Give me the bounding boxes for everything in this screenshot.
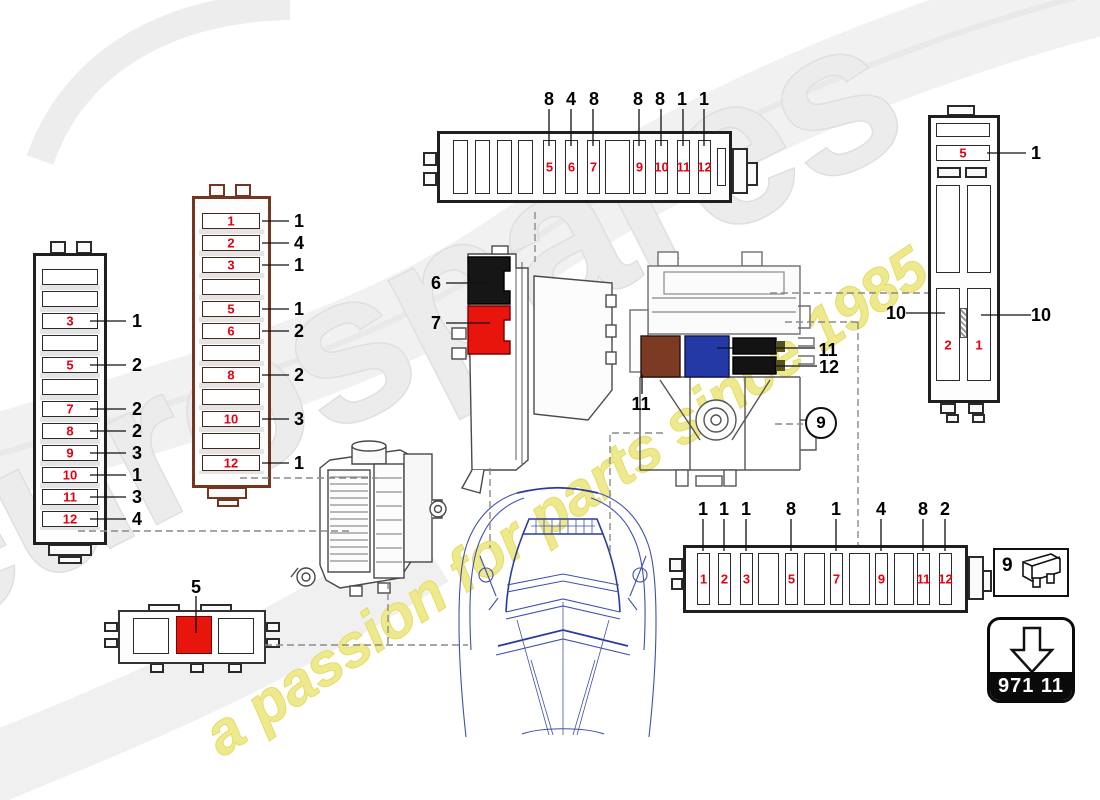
fuse-number: 2 [944, 339, 951, 352]
callout-top-slot6[interactable]: 4 [566, 90, 576, 108]
left-panel-foot-tab [58, 556, 82, 564]
right-panel-foot-pin-b [972, 414, 985, 423]
top-fusebox-connector-right-tab [746, 162, 758, 186]
left-row-8: 8 [42, 423, 98, 439]
callout-bottom-slot9[interactable]: 4 [876, 500, 886, 518]
top-slot-6: 6 [565, 140, 578, 194]
carrier-tab-right-a [266, 622, 280, 632]
fuse-number: 3 [66, 315, 73, 328]
callout-top-slot9[interactable]: 8 [633, 90, 643, 108]
bottom-slot-10 [894, 553, 914, 605]
mid-row-3: 3 [202, 257, 260, 273]
right-panel-center-key [960, 308, 967, 338]
callout-top-slot5[interactable]: 8 [544, 90, 554, 108]
bottom-fusebox-connector-left-a [669, 558, 683, 572]
legend-fuse-box: 9 [993, 548, 1069, 597]
bottom-slot-11: 11 [917, 553, 930, 605]
bottom-slot-3: 3 [740, 553, 753, 605]
callout-bottom-slot2[interactable]: 1 [719, 500, 729, 518]
fuse-number: 6 [568, 161, 575, 174]
mid-row-7 [202, 345, 260, 361]
top-slot-7: 7 [587, 140, 600, 194]
callout-bottom-slot7[interactable]: 1 [831, 500, 841, 518]
mid-row-11 [202, 433, 260, 449]
mid-row-10: 10 [202, 411, 260, 427]
left-panel-foot [48, 544, 92, 556]
bottom-slot-5: 5 [785, 553, 798, 605]
callout-bottom-slot1[interactable]: 1 [698, 500, 708, 518]
carrier-slot-left [133, 618, 169, 654]
fuse-number: 7 [66, 403, 73, 416]
fuse-number: 8 [227, 369, 234, 382]
circled-ref-label: 9 [816, 413, 825, 433]
callout-bottom-slot12[interactable]: 2 [940, 500, 950, 518]
callout-bottom-slot3[interactable]: 1 [741, 500, 751, 518]
fuse-number: 10 [224, 413, 238, 426]
fuse-number: 3 [227, 259, 234, 272]
left-row-4 [42, 335, 98, 351]
callout-bottom-slot11[interactable]: 8 [918, 500, 928, 518]
fuse-number: 12 [938, 573, 952, 586]
right-cell-bottom-right: 1 [967, 288, 991, 381]
callout-left-row12[interactable]: 4 [132, 510, 142, 528]
mid-row-8: 8 [202, 367, 260, 383]
fuse-number: 8 [66, 425, 73, 438]
mid-row-12: 12 [202, 455, 260, 471]
mid-row-6: 6 [202, 323, 260, 339]
callout-top-slot11[interactable]: 1 [677, 90, 687, 108]
fuse-number: 7 [590, 161, 597, 174]
callout-carrier-5[interactable]: 5 [191, 578, 201, 596]
bottom-fusebox-connector-left-b [671, 578, 683, 590]
callout-mid-row5[interactable]: 1 [294, 300, 304, 318]
top-slot-2 [475, 140, 490, 194]
arrow-down-icon [990, 620, 1075, 680]
fuse-number: 3 [743, 573, 750, 586]
fusebox-bottom: 1 2 3 5 7 9 11 12 [683, 545, 968, 613]
top-slot-11: 11 [677, 140, 690, 194]
fuse-holder-housing [291, 441, 446, 596]
fuse-number: 1 [975, 339, 982, 352]
mid-panel-foot [207, 487, 247, 499]
carrier-foot-b [190, 663, 204, 673]
fuse-panel-right: 5 2 1 [928, 115, 1000, 403]
top-fusebox-connector-left-a [423, 152, 437, 166]
top-slot-3 [497, 140, 512, 194]
top-slot-4 [518, 140, 533, 194]
callout-mid-row1[interactable]: 1 [294, 212, 304, 230]
callout-black-block-6[interactable]: 6 [431, 274, 441, 292]
fuse-number: 1 [227, 215, 234, 228]
relay-carrier-small [118, 610, 266, 664]
left-row-11: 11 [42, 489, 98, 505]
carrier-foot-a [150, 663, 164, 673]
callout-left-row7[interactable]: 2 [132, 400, 142, 418]
fuse-number: 10 [63, 469, 77, 482]
callout-left-row9[interactable]: 3 [132, 444, 142, 462]
fuse-number: 9 [636, 161, 643, 174]
fuse-number: 12 [697, 161, 711, 174]
callout-top-slot7[interactable]: 8 [589, 90, 599, 108]
carrier-slot-right [218, 618, 254, 654]
carrier-fuse-red-5 [176, 616, 212, 654]
callout-right-10-right[interactable]: 10 [1031, 306, 1051, 324]
fuse-number: 6 [227, 325, 234, 338]
relay-plate-assembly [630, 252, 816, 486]
carrier-tab-left-b [104, 638, 118, 648]
right-cell-bottom-left: 2 [936, 288, 960, 381]
fuse-number: 5 [546, 161, 553, 174]
circled-ref-9[interactable]: 9 [805, 407, 837, 439]
fusebox-top: 5 6 7 9 10 11 12 [437, 131, 732, 203]
callout-brown-block-11[interactable]: 11 [631, 395, 650, 413]
callout-left-row8[interactable]: 2 [132, 422, 142, 440]
fuse-number: 2 [721, 573, 728, 586]
part-code-badge: 971 11 [987, 617, 1075, 703]
carrier-tab-right-b [266, 638, 280, 648]
right-row-1 [936, 123, 990, 137]
relay-carrier-side-view [452, 246, 616, 493]
top-slot-5: 5 [543, 140, 556, 194]
callout-right-10-left[interactable]: 10 [886, 304, 906, 322]
carrier-foot-c [228, 663, 242, 673]
mid-row-1: 1 [202, 213, 260, 229]
callout-mid-row12[interactable]: 1 [294, 454, 304, 472]
left-row-1 [42, 269, 98, 285]
top-slot-end [717, 148, 726, 186]
fuse-number: 11 [677, 161, 691, 174]
bottom-fusebox-connector-right-tab [982, 570, 992, 592]
left-row-12: 12 [42, 511, 98, 527]
diagram-canvas: eurospares a passion for parts since 198… [0, 0, 1100, 800]
mid-row-5: 5 [202, 301, 260, 317]
callout-mid-row8[interactable]: 2 [294, 366, 304, 384]
callout-left-row5[interactable]: 2 [132, 356, 142, 374]
fuse-number: 1 [700, 573, 707, 586]
top-slot-10: 10 [655, 140, 668, 194]
mid-row-2: 2 [202, 235, 260, 251]
legend-ref-label: 9 [1002, 555, 1013, 577]
right-panel-foot-a [940, 403, 956, 414]
callout-right-row5[interactable]: 1 [1031, 144, 1041, 162]
right-panel-foot-b [968, 403, 984, 414]
part-code-label: 971 11 [990, 672, 1072, 700]
callout-left-row3[interactable]: 1 [132, 312, 142, 330]
fuse-number: 5 [788, 573, 795, 586]
relay-block-black-12a [733, 338, 776, 354]
relay-block-brown-11 [641, 336, 680, 377]
left-row-2 [42, 291, 98, 307]
left-row-7: 7 [42, 401, 98, 417]
relay-block-black-6 [468, 257, 510, 304]
top-slot-9: 9 [633, 140, 646, 194]
fuse-number: 9 [66, 447, 73, 460]
right-panel-foot-pin-a [946, 414, 959, 423]
right-cell-top-right [967, 185, 991, 273]
mid-row-4 [202, 279, 260, 295]
fuse-number: 12 [224, 457, 238, 470]
fuse-number: 7 [833, 573, 840, 586]
top-slot-8 [605, 140, 630, 194]
car-outline [459, 488, 656, 737]
left-row-10: 10 [42, 467, 98, 483]
callout-bottom-slot5[interactable]: 8 [786, 500, 796, 518]
carrier-tab-left-a [104, 622, 118, 632]
left-row-9: 9 [42, 445, 98, 461]
fuse-number: 5 [227, 303, 234, 316]
fuse-number: 5 [66, 359, 73, 372]
bottom-slot-4 [758, 553, 779, 605]
relay-block-black-12b [733, 357, 776, 374]
callout-mid-row6[interactable]: 2 [294, 322, 304, 340]
bottom-slot-1: 1 [697, 553, 710, 605]
fuse-number: 12 [63, 513, 77, 526]
fuse-number: 5 [959, 147, 966, 160]
top-slot-1 [453, 140, 468, 194]
fuse-panel-left: 3 5 7 8 9 10 11 12 [33, 253, 107, 545]
left-row-3: 3 [42, 313, 98, 329]
top-slot-12: 12 [698, 140, 711, 194]
bottom-slot-9: 9 [875, 553, 888, 605]
bottom-slot-8 [849, 553, 870, 605]
callout-mid-row10[interactable]: 3 [294, 410, 304, 428]
fuse-number: 9 [878, 573, 885, 586]
mid-row-9 [202, 389, 260, 405]
mid-panel-foot-tab [217, 499, 239, 507]
right-panel-divider-a [937, 167, 961, 178]
callout-top-slot10[interactable]: 8 [655, 90, 665, 108]
fuse-number: 2 [227, 237, 234, 250]
fuse-number: 11 [63, 491, 77, 504]
fuse-panel-mid: 1 2 3 5 6 8 10 12 [192, 196, 271, 488]
right-panel-divider-b [965, 167, 987, 178]
relay-block-blue-11 [685, 336, 729, 377]
left-row-6 [42, 379, 98, 395]
fuse-number: 11 [917, 573, 931, 586]
top-fusebox-connector-left-b [423, 172, 437, 186]
callout-top-slot12[interactable]: 1 [699, 90, 709, 108]
callout-black-block-12[interactable]: 12 [819, 358, 839, 376]
fuse-number: 10 [654, 161, 668, 174]
relay-block-red-7 [468, 306, 510, 354]
bottom-slot-12: 12 [939, 553, 952, 605]
bottom-slot-7: 7 [830, 553, 843, 605]
left-row-5: 5 [42, 357, 98, 373]
callout-red-block-7[interactable]: 7 [431, 314, 441, 332]
right-cell-top-left [936, 185, 960, 273]
bottom-slot-2: 2 [718, 553, 731, 605]
right-row-5: 5 [936, 145, 990, 161]
callout-left-row11[interactable]: 3 [132, 488, 142, 506]
callout-mid-row3[interactable]: 1 [294, 256, 304, 274]
bottom-slot-6 [804, 553, 825, 605]
callout-left-row10[interactable]: 1 [132, 466, 142, 484]
callout-mid-row2[interactable]: 4 [294, 234, 304, 252]
